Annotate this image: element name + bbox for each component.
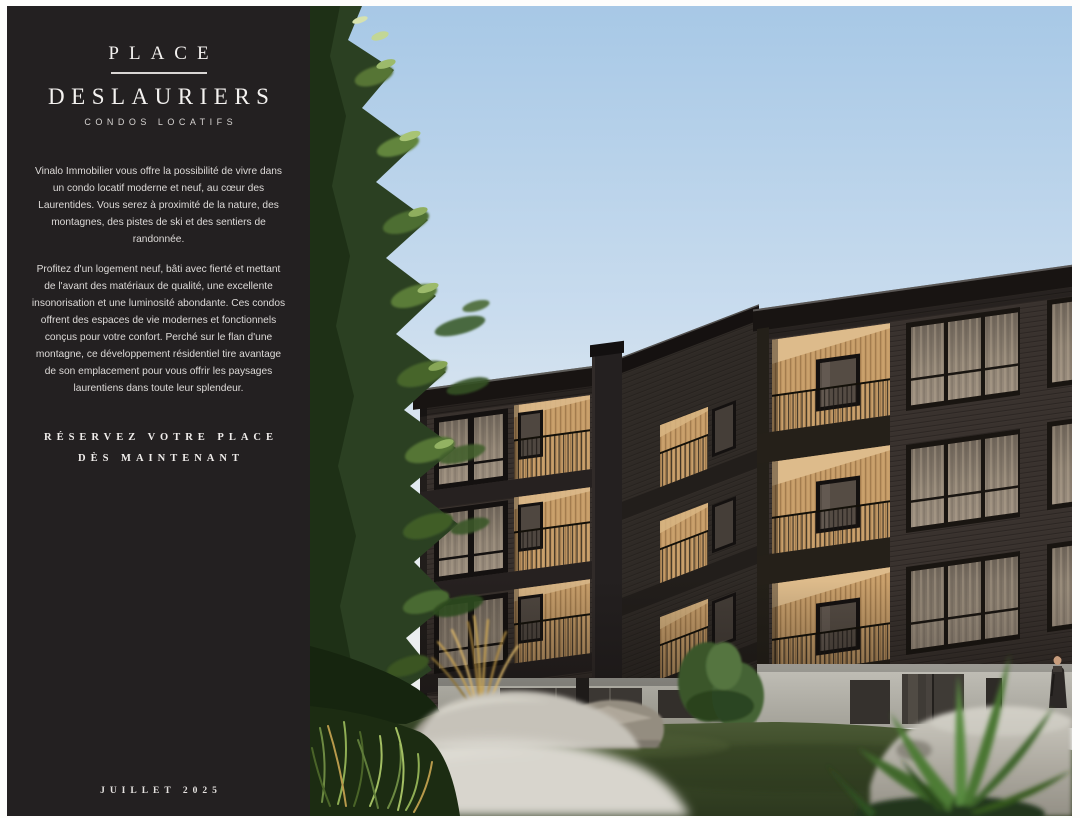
brand-subtitle: CONDOS LOCATIFS [7,118,310,127]
intro-paragraph: Vinalo Immobilier vous offre la possibil… [32,163,286,248]
brand-title-line2: DESLAURIERS [7,85,310,108]
cta-block: RÉSERVEZ VOTRE PLACE DÈS MAINTENANT [7,427,310,469]
footer-date: JUILLET 2025 [7,786,310,796]
title-divider [111,72,207,74]
building-right [753,264,1072,731]
sidebar-panel: PLACE DESLAURIERS CONDOS LOCATIFS Vinalo… [7,6,310,816]
brand-block: PLACE DESLAURIERS CONDOS LOCATIFS [7,44,310,127]
cta-line1: RÉSERVEZ VOTRE PLACE [12,427,310,448]
brand-title-line1: PLACE [7,44,310,63]
details-paragraph: Profitez d'un logement neuf, bâti avec f… [32,261,286,397]
architectural-rendering [310,6,1072,816]
brochure-page: PLACE DESLAURIERS CONDOS LOCATIFS Vinalo… [0,0,1080,818]
cta-line2: DÈS MAINTENANT [12,448,310,469]
